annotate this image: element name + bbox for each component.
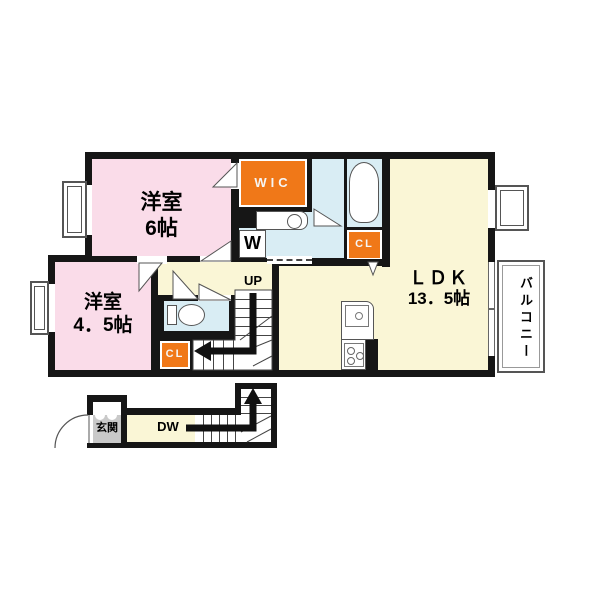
- sliding-door-dashes: [267, 259, 312, 261]
- ldk-floor-right: [390, 159, 488, 370]
- stair-step: [235, 299, 272, 300]
- entrance-label: 玄関: [93, 422, 121, 434]
- wall-segment: [239, 212, 257, 228]
- stair-step: [241, 413, 271, 414]
- washroom-floor-strip: [312, 159, 344, 212]
- stair-step: [235, 415, 236, 442]
- wall-segment: [382, 159, 390, 267]
- entrance-door-arc: [55, 415, 88, 448]
- bedroom45-size-label: 4．5帖: [48, 316, 158, 337]
- door-opening-bedroom6: [200, 256, 231, 262]
- bedroom6-size-label: 6帖: [92, 217, 231, 240]
- kitchen-faucet: [355, 312, 363, 320]
- stair-step: [211, 415, 212, 442]
- window-bedroom6-inner: [67, 186, 82, 233]
- stair-step: [223, 340, 224, 370]
- stove-burner: [356, 352, 364, 360]
- stair-step: [233, 340, 234, 370]
- entrance-step-scallop: [95, 410, 105, 420]
- window-bedroom45-inner: [34, 286, 45, 330]
- ldk-name-label: ＬＤＫ: [390, 269, 488, 289]
- stove-burner: [347, 357, 355, 365]
- door-opening-bedroom45: [137, 256, 167, 264]
- closet-hall-label: CL: [160, 348, 190, 360]
- stove-burner: [347, 347, 355, 355]
- stair-step: [235, 308, 272, 309]
- wall-segment: [366, 339, 378, 370]
- toilet-tank: [167, 305, 177, 325]
- stairs-up-run: [235, 290, 272, 370]
- stair-step: [203, 340, 204, 370]
- balcony-sliding-door: [488, 262, 495, 356]
- stair-step: [241, 405, 271, 406]
- stair-step: [235, 326, 272, 327]
- window-ldk-inner: [500, 190, 524, 226]
- stair-step: [213, 340, 214, 370]
- bedroom6-name-label: 洋室: [92, 191, 231, 214]
- bedroom45-name-label: 洋室: [55, 293, 151, 314]
- hall-floor-left: [158, 262, 235, 295]
- door-opening-wic: [231, 163, 239, 189]
- down-label: DW: [152, 420, 184, 434]
- ldk-size-label: 13．5帖: [381, 290, 497, 309]
- stair-step: [227, 415, 228, 442]
- balcony-label: バルコニー: [510, 272, 532, 364]
- wall-segment: [347, 227, 382, 230]
- stairs-up-landing: [193, 340, 235, 370]
- closet-bath-label: CL: [347, 238, 382, 250]
- stair-step: [219, 415, 220, 442]
- wall-segment: [312, 259, 390, 266]
- bathtub: [349, 162, 379, 223]
- washer-label: W: [239, 234, 266, 254]
- stair-step: [241, 397, 271, 398]
- toilet-bowl: [178, 304, 205, 326]
- stair-step: [235, 335, 272, 336]
- stair-step: [203, 415, 204, 442]
- sliding-door-washroom: [267, 256, 312, 264]
- door-opening-toilet: [198, 295, 231, 301]
- window-opening-ldk: [488, 190, 495, 228]
- wic-label: WIC: [239, 176, 307, 190]
- washbasin-sink: [287, 214, 302, 229]
- kitchen-stove: [344, 343, 364, 367]
- wall-segment: [272, 262, 279, 370]
- floor-plan: 洋室 6帖 洋室 4．5帖 ＬＤＫ 13．5帖 WIC W CL CL UP D…: [0, 0, 600, 600]
- entrance-step-scallop: [107, 410, 117, 420]
- stair-step: [235, 317, 272, 318]
- up-label: UP: [238, 274, 268, 288]
